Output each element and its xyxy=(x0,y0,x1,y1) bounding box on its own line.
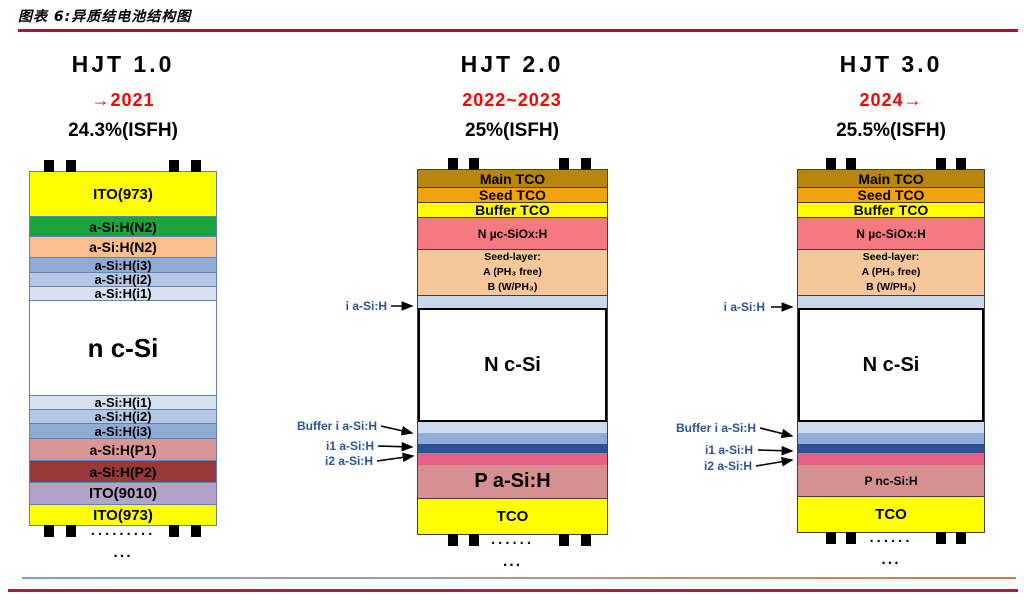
layer-tco: TCO xyxy=(418,498,607,534)
contact-tab xyxy=(448,158,458,170)
layer-text-line: A (PH₃ free) xyxy=(483,265,542,280)
arrow-i1-hjt3 xyxy=(758,450,792,451)
figure-title: 图表 6:异质结电池结构图 xyxy=(18,6,191,26)
continuation-ellipsis: ... xyxy=(30,546,216,560)
layer-a-si-h-i3: a-Si:H(i3) xyxy=(30,423,216,438)
layer-a-si-h-n2: a-Si:H(N2) xyxy=(30,216,216,236)
hjt3-label-buffer-i-asih: Buffer i a-Si:H xyxy=(646,421,756,435)
layer-unlabeled xyxy=(798,453,984,465)
layer-a-si-h-i1: a-Si:H(i1) xyxy=(30,286,216,300)
contact-tab xyxy=(44,160,54,172)
layer-n-c-si: N c-Si xyxy=(418,308,607,422)
layer-text-line: Seed-layer: xyxy=(863,250,920,265)
hjt3-version-title: HJT 3.0 xyxy=(786,50,996,78)
arrow-i2-hjt3 xyxy=(756,460,792,466)
layer-n-c-si: N c-Si xyxy=(798,308,984,422)
layer-a-si-h-i1: a-Si:H(i1) xyxy=(30,395,216,409)
contact-tab xyxy=(826,158,836,170)
layer-tco: TCO xyxy=(798,496,984,532)
layer-buffer-tco: Buffer TCO xyxy=(798,202,984,217)
bottom-contact-dots: ...... xyxy=(418,534,607,546)
layer-main-tco: Main TCO xyxy=(418,170,607,187)
contact-tab xyxy=(581,158,591,170)
layer-seed-tco: Seed TCO xyxy=(418,187,607,202)
hjt3-period: 2024→ xyxy=(786,90,996,110)
bottom-contact-dots: ...... xyxy=(798,532,984,544)
layer-seed-layer: Seed-layer:A (PH₃ free)B (W/PH₃) xyxy=(418,249,607,295)
layer-text-line: Seed-layer: xyxy=(484,250,541,265)
layer-a-si-h-n2: a-Si:H(N2) xyxy=(30,236,216,257)
contact-tab xyxy=(469,158,479,170)
figure-page: 图表 6:异质结电池结构图 HJT 1.0 →2021 24.3%(ISFH) … xyxy=(0,0,1024,601)
contact-tab xyxy=(936,158,946,170)
hjt2-label-i2-asih: i2 a-Si:H xyxy=(263,454,373,468)
layer-text-line: B (W/PH₃) xyxy=(488,280,538,295)
layer-unlabeled xyxy=(418,444,607,453)
contact-tab xyxy=(956,158,966,170)
layer-unlabeled xyxy=(418,453,607,465)
layer-unlabeled xyxy=(798,295,984,308)
contact-tab xyxy=(559,158,569,170)
layer-n-c-siox-h: N µc-SiOx:H xyxy=(798,217,984,249)
hjt2-label-i1-asih: i1 a-Si:H xyxy=(264,439,374,453)
layer-text-line: B (W/PH₃) xyxy=(866,280,916,295)
hjt3-label-i1-asih: i1 a-Si:H xyxy=(643,443,753,457)
hjt2-version-title: HJT 2.0 xyxy=(407,50,617,78)
layer-p-nc-si-h: P nc-Si:H xyxy=(798,465,984,496)
bottom-red-rule xyxy=(8,589,1018,592)
layer-unlabeled xyxy=(798,444,984,453)
layer-n-c-si: n c-Si xyxy=(30,300,216,395)
layer-ito-9010: ITO(9010) xyxy=(30,482,216,504)
title-rule xyxy=(18,29,1018,32)
contact-tab xyxy=(169,160,179,172)
layer-buffer-tco: Buffer TCO xyxy=(418,202,607,217)
hjt2-header: HJT 2.0 2022~2023 25%(ISFH) xyxy=(407,50,617,143)
hjt2-label-i-asih: i a-Si:H xyxy=(277,299,387,313)
layer-unlabeled xyxy=(798,433,984,444)
hjt3-header: HJT 3.0 2024→ 25.5%(ISFH) xyxy=(786,50,996,143)
hjt2-efficiency: 25%(ISFH) xyxy=(407,119,617,143)
continuation-ellipsis: ... xyxy=(418,555,607,569)
continuation-ellipsis: ... xyxy=(798,553,984,567)
hjt3-stack: Main TCOSeed TCOBuffer TCON µc-SiOx:HSee… xyxy=(797,169,985,533)
arrow-buffer-hjt3 xyxy=(760,428,792,436)
hjt3-label-i-asih: i a-Si:H xyxy=(655,300,765,314)
layer-seed-layer: Seed-layer:A (PH₃ free)B (W/PH₃) xyxy=(798,249,984,295)
contact-tab xyxy=(191,160,201,172)
arrow-buffer-hjt2 xyxy=(381,426,412,433)
layer-seed-tco: Seed TCO xyxy=(798,187,984,202)
layer-unlabeled xyxy=(418,433,607,444)
hjt3-label-i2-asih: i2 a-Si:H xyxy=(642,459,752,473)
layer-a-si-h-p2: a-Si:H(P2) xyxy=(30,460,216,482)
layer-a-si-h-i3: a-Si:H(i3) xyxy=(30,257,216,272)
layer-text-line: A (PH₃ free) xyxy=(862,265,921,280)
layer-ito-973: ITO(973) xyxy=(30,172,216,216)
hjt1-version-title: HJT 1.0 xyxy=(19,50,227,78)
hjt3-efficiency: 25.5%(ISFH) xyxy=(786,119,996,143)
layer-a-si-h-i2: a-Si:H(i2) xyxy=(30,272,216,286)
layer-unlabeled xyxy=(418,295,607,308)
layer-main-tco: Main TCO xyxy=(798,170,984,187)
layer-a-si-h-p1: a-Si:H(P1) xyxy=(30,438,216,460)
hjt2-stack: Main TCOSeed TCOBuffer TCON µc-SiOx:HSee… xyxy=(417,169,608,535)
hjt2-period: 2022~2023 xyxy=(407,90,617,110)
layer-unlabeled xyxy=(418,422,607,433)
layer-p-a-si-h: P a-Si:H xyxy=(418,465,607,498)
bottom-gradient-rule xyxy=(22,577,1016,579)
hjt1-header: HJT 1.0 →2021 24.3%(ISFH) xyxy=(19,50,227,143)
layer-unlabeled xyxy=(798,422,984,433)
hjt1-efficiency: 24.3%(ISFH) xyxy=(19,119,227,143)
hjt2-label-buffer-i-asih: Buffer i a-Si:H xyxy=(267,419,377,433)
layer-n-c-siox-h: N µc-SiOx:H xyxy=(418,217,607,249)
bottom-contact-dots: ......... xyxy=(30,525,216,537)
contact-tab xyxy=(846,158,856,170)
arrow-i1-hjt2 xyxy=(378,446,412,447)
contact-tab xyxy=(66,160,76,172)
arrow-i2-hjt2 xyxy=(377,456,413,461)
hjt1-stack: ITO(973)a-Si:H(N2)a-Si:H(N2)a-Si:H(i3)a-… xyxy=(29,171,217,526)
hjt1-period: →2021 xyxy=(19,90,227,110)
layer-a-si-h-i2: a-Si:H(i2) xyxy=(30,409,216,423)
